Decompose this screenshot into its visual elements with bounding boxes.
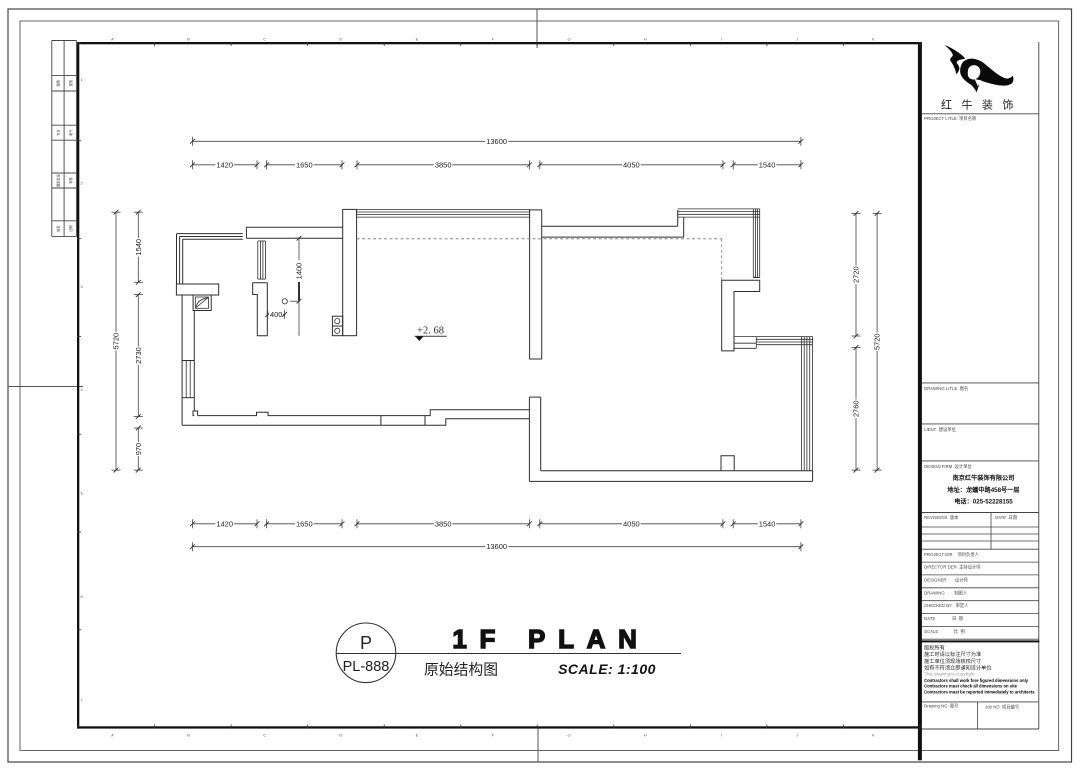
- svg-text:C: C: [263, 37, 266, 42]
- svg-text:1540: 1540: [759, 160, 776, 169]
- svg-text:施工时请以标注尺寸为准: 施工时请以标注尺寸为准: [924, 650, 981, 658]
- svg-text:施工单位须现场核校尺寸: 施工单位须现场核校尺寸: [924, 657, 981, 665]
- svg-text:DIRECTOR DER 主持设计师: DIRECTOR DER 主持设计师: [924, 564, 981, 571]
- svg-text:3850: 3850: [435, 519, 452, 528]
- svg-text:PROJECT DIR 项目负责人: PROJECT DIR 项目负责人: [924, 551, 980, 558]
- svg-text:电话：025-52228155: 电话：025-52228155: [954, 497, 1013, 505]
- svg-text:DATE 日 期: DATE 日 期: [924, 616, 963, 622]
- svg-text:审核: 审核: [68, 177, 73, 184]
- svg-text:1650: 1650: [296, 160, 313, 169]
- svg-text:+2. 68: +2. 68: [417, 326, 444, 337]
- svg-text:1540: 1540: [759, 519, 776, 528]
- svg-text:建施: 建施: [68, 79, 73, 86]
- svg-text:3: 3: [81, 284, 84, 289]
- svg-text:版权所有: 版权所有: [924, 644, 945, 652]
- svg-text:红 牛 装 饰: 红 牛 装 饰: [941, 98, 1017, 112]
- svg-text:6: 6: [81, 594, 84, 599]
- svg-text:400: 400: [270, 310, 283, 319]
- svg-text:南京红牛装饰有限公司: 南京红牛装饰有限公司: [953, 474, 1015, 482]
- svg-text:G: G: [568, 37, 571, 42]
- svg-text:REVISIONS 版本: REVISIONS 版本: [924, 514, 959, 521]
- svg-text:电气: 电气: [68, 129, 73, 136]
- svg-text:DESIGN FIRM 设计单位: DESIGN FIRM 设计单位: [924, 463, 972, 470]
- svg-text:Contractors must check all dim: Contractors must check all dimensions on…: [924, 684, 1018, 689]
- svg-text:图纸目录: 图纸目录: [56, 173, 61, 187]
- svg-text:This drawing is copyright: This drawing is copyright: [924, 671, 975, 676]
- svg-text:970: 970: [134, 443, 143, 456]
- svg-text:3850: 3850: [435, 160, 452, 169]
- svg-text:G: G: [568, 733, 571, 738]
- svg-text:CHECKED BY 审定人: CHECKED BY 审定人: [924, 602, 969, 609]
- svg-text:图别: 图别: [56, 80, 61, 86]
- svg-text:Drawing NO 图号: Drawing NO 图号: [924, 703, 958, 709]
- svg-text:Contractors shall work fore fi: Contractors shall work fore figured dime…: [924, 678, 1029, 683]
- svg-text:H: H: [644, 37, 647, 42]
- svg-text:1650: 1650: [296, 519, 313, 528]
- svg-text:SCALE 比 例: SCALE 比 例: [924, 628, 965, 635]
- svg-text:C: C: [263, 733, 266, 738]
- svg-text:5720: 5720: [112, 333, 121, 350]
- svg-text:D: D: [339, 733, 342, 738]
- svg-text:E: E: [416, 733, 419, 738]
- svg-text:PROJECT LITLE 项目名称: PROJECT LITLE 项目名称: [924, 115, 977, 122]
- svg-text:Job NO 项目编号: Job NO 项目编号: [985, 704, 1019, 711]
- svg-text:K: K: [872, 37, 875, 42]
- svg-text:DRAWING LITLE 图名: DRAWING LITLE 图名: [924, 385, 968, 392]
- svg-text:原始结构图: 原始结构图: [424, 662, 498, 679]
- svg-text:P: P: [360, 633, 372, 653]
- svg-text:H: H: [644, 733, 647, 738]
- svg-text:DRAWING 制图人: DRAWING 制图人: [924, 589, 968, 596]
- svg-text:4050: 4050: [623, 519, 640, 528]
- svg-text:DESIGNER 设计师: DESIGNER 设计师: [924, 577, 968, 584]
- svg-text:B: B: [187, 37, 190, 42]
- svg-text:13600: 13600: [486, 137, 507, 146]
- svg-text:5: 5: [81, 491, 84, 496]
- svg-text:J: J: [796, 733, 798, 738]
- svg-text:7: 7: [81, 697, 84, 702]
- svg-text:A: A: [111, 733, 114, 738]
- svg-text:K: K: [872, 733, 875, 738]
- svg-text:5720: 5720: [873, 333, 882, 350]
- svg-text:SCALE: 1:100: SCALE: 1:100: [558, 661, 656, 677]
- svg-text:LIENT 建设单位: LIENT 建设单位: [924, 426, 956, 433]
- svg-text:2760: 2760: [852, 400, 861, 417]
- svg-text:如有不符须立即通知设计单位: 如有不符须立即通知设计单位: [924, 664, 991, 672]
- svg-text:姓名: 姓名: [56, 225, 61, 231]
- svg-text:2: 2: [81, 180, 84, 185]
- svg-text:1: 1: [81, 77, 84, 82]
- svg-text:1420: 1420: [216, 160, 233, 169]
- svg-text:I: I: [721, 733, 722, 738]
- svg-text:E: E: [416, 37, 419, 42]
- svg-text:F: F: [492, 733, 495, 738]
- svg-text:4: 4: [81, 387, 84, 392]
- svg-text:D: D: [339, 37, 342, 42]
- svg-text:2730: 2730: [134, 347, 143, 364]
- svg-text:1F PLAN: 1F PLAN: [452, 624, 649, 654]
- svg-text:日期: 日期: [68, 225, 73, 231]
- svg-text:PL-888: PL-888: [343, 659, 390, 675]
- svg-text:1540: 1540: [134, 239, 143, 256]
- svg-text:DATE 日期: DATE 日期: [995, 515, 1017, 521]
- svg-text:专业: 专业: [56, 130, 61, 136]
- svg-text:I: I: [721, 37, 722, 42]
- svg-text:J: J: [796, 37, 798, 42]
- svg-text:2720: 2720: [852, 266, 861, 283]
- svg-text:Contractors must be reported i: Contractors must be reported immediately…: [924, 689, 1035, 694]
- svg-text:4050: 4050: [623, 160, 640, 169]
- svg-text:B: B: [187, 733, 190, 738]
- svg-text:1400: 1400: [295, 263, 304, 280]
- svg-text:1420: 1420: [216, 519, 233, 528]
- svg-text:A: A: [111, 37, 114, 42]
- svg-text:13600: 13600: [486, 542, 507, 551]
- svg-text:F: F: [492, 37, 495, 42]
- svg-text:地址：龙蟠中路458号一层: 地址：龙蟠中路458号一层: [947, 486, 1019, 494]
